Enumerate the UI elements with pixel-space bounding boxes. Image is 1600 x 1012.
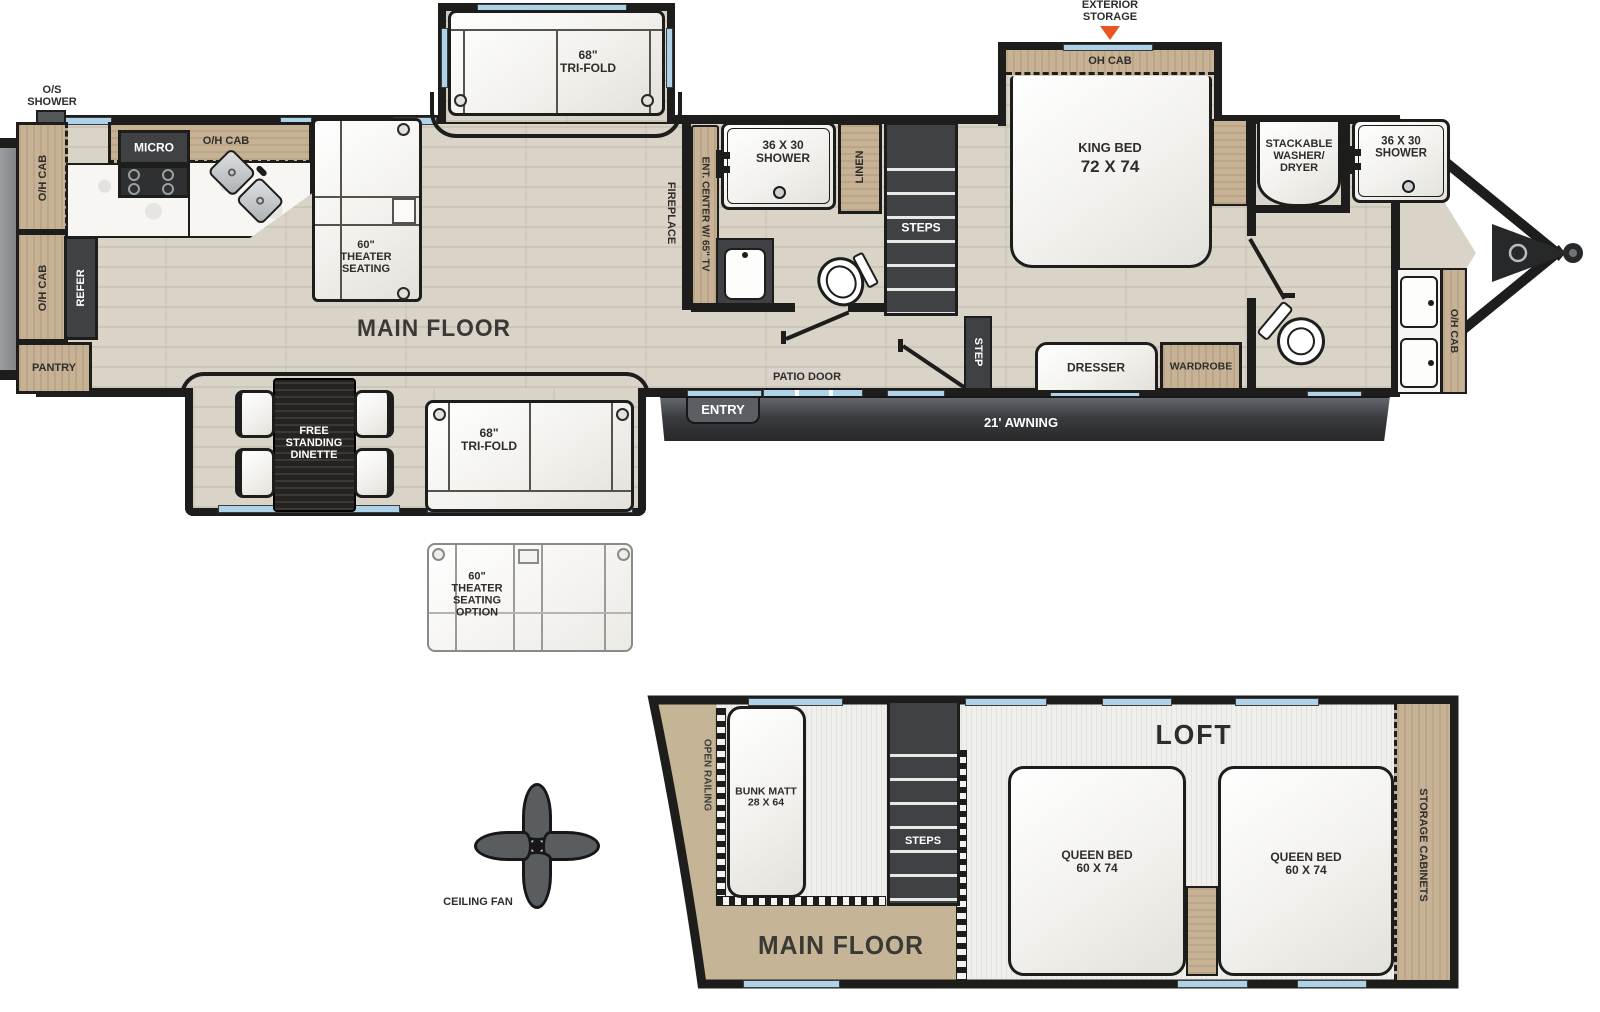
stair-treads bbox=[887, 168, 955, 313]
theater-option-label: 60" THEATER SEATING OPTION bbox=[451, 571, 502, 619]
oh-cab-left-top-label: O/H CAB bbox=[37, 155, 49, 201]
faucet-icon bbox=[1428, 300, 1434, 306]
dinette-label: FREE STANDING DINETTE bbox=[286, 426, 343, 462]
bunk-railing bbox=[716, 708, 726, 904]
step-label: STEP bbox=[972, 338, 984, 367]
washer-dryer-label: STACKABLE WASHER/ DRYER bbox=[1265, 139, 1332, 175]
nightstand bbox=[1186, 886, 1218, 976]
sofa-backrest bbox=[428, 490, 631, 509]
shower-front-label: 36 X 30 SHOWER bbox=[1375, 136, 1427, 161]
microwave-label: MICRO bbox=[134, 142, 174, 155]
bunk-matt-label: BUNK MATT 28 X 64 bbox=[735, 787, 797, 810]
sofa-divider bbox=[529, 403, 531, 490]
window bbox=[1063, 44, 1153, 51]
dinette-chair bbox=[235, 448, 275, 498]
shower-mid-label: 36 X 30 SHOWER bbox=[756, 139, 810, 165]
loft-main-floor-label: MAIN FLOOR bbox=[758, 931, 924, 959]
awning-label: 21' AWNING bbox=[984, 416, 1058, 430]
dinette-chair bbox=[354, 390, 394, 438]
trifold-top-label: 68" TRI-FOLD bbox=[560, 49, 616, 75]
screw-icon bbox=[617, 548, 630, 561]
screw-icon bbox=[433, 408, 446, 421]
dresser-label: DRESSER bbox=[1067, 362, 1125, 375]
window bbox=[1297, 980, 1367, 988]
theater-option-armrest bbox=[604, 545, 606, 650]
theater-seating-label: 60" THEATER SEATING bbox=[340, 240, 391, 276]
shower-knob-icon bbox=[723, 152, 730, 159]
storage-cabinets-label: STORAGE CABINETS bbox=[1417, 788, 1429, 901]
exterior-storage-arrow-icon bbox=[1100, 26, 1120, 40]
burner-icon bbox=[128, 169, 140, 181]
steps-label: STEPS bbox=[901, 222, 940, 235]
sofa-backrest bbox=[451, 13, 662, 31]
king-oh-cab-label: OH CAB bbox=[1088, 56, 1131, 68]
theater-option-cupholder bbox=[518, 549, 539, 564]
burner-icon bbox=[162, 169, 174, 181]
front-oh-cab-label: O/H CAB bbox=[1448, 309, 1460, 353]
screw-icon bbox=[397, 287, 410, 300]
door-handle bbox=[781, 331, 786, 344]
shower-drain-icon bbox=[1402, 180, 1415, 193]
window bbox=[1102, 698, 1172, 706]
window bbox=[1235, 698, 1319, 706]
wall bbox=[848, 303, 884, 312]
loft-steps-label: STEPS bbox=[905, 836, 941, 848]
fan-blade-icon bbox=[474, 831, 532, 861]
shower-head-icon bbox=[1347, 146, 1353, 174]
floorplan-canvas: 68" TRI-FOLD OH CAB KING BED 72 X 74 EXT… bbox=[0, 0, 1600, 1012]
trifold-bottom-label: 68" TRI-FOLD bbox=[461, 427, 517, 453]
dinette-chair bbox=[354, 448, 394, 498]
refer-label: REFER bbox=[75, 269, 87, 306]
faucet-icon bbox=[742, 252, 748, 258]
sofa-armrest bbox=[611, 403, 613, 490]
burner-icon bbox=[128, 183, 140, 195]
kitchen-oh-cab-label: O/H CAB bbox=[203, 136, 249, 148]
queen-bed-1-label: QUEEN BED 60 X 74 bbox=[1061, 849, 1132, 875]
shower-knob-icon bbox=[1354, 163, 1361, 170]
wall bbox=[1247, 122, 1256, 236]
shower-knob-icon bbox=[1354, 149, 1361, 156]
sofa-armrest bbox=[448, 403, 450, 490]
main-floor-label: MAIN FLOOR bbox=[357, 316, 511, 342]
screw-icon bbox=[432, 548, 445, 561]
sofa-divider bbox=[556, 31, 558, 113]
window bbox=[965, 698, 1047, 706]
faucet-icon bbox=[1428, 360, 1434, 366]
patio-door-gap bbox=[795, 390, 799, 396]
patio-door-gap bbox=[829, 390, 833, 396]
door-handle bbox=[898, 339, 903, 352]
fireplace-label: FIREPLACE bbox=[665, 182, 677, 244]
patio-door-label: PATIO DOOR bbox=[773, 372, 841, 384]
theater-console bbox=[392, 198, 416, 224]
wardrobe-label: WARDROBE bbox=[1170, 361, 1232, 372]
queen-bed-2-label: QUEEN BED 60 X 74 bbox=[1270, 851, 1341, 877]
hitch-ball-center bbox=[1569, 249, 1577, 257]
king-bed-size: 72 X 74 bbox=[1081, 158, 1140, 176]
window bbox=[1177, 980, 1248, 988]
window bbox=[441, 28, 448, 88]
screw-icon bbox=[616, 408, 629, 421]
king-bed-title: KING BED bbox=[1078, 141, 1142, 155]
window bbox=[666, 28, 673, 88]
fan-hub-icon bbox=[531, 840, 543, 852]
patio-door bbox=[763, 388, 863, 398]
wall bbox=[682, 122, 691, 310]
shower-knob-icon bbox=[723, 166, 730, 173]
loft-stair-treads bbox=[890, 754, 957, 903]
wall bbox=[1250, 205, 1350, 213]
os-shower-label: O/S SHOWER bbox=[27, 85, 77, 109]
wall bbox=[691, 303, 795, 312]
bedroom-closet bbox=[1212, 119, 1248, 206]
ceiling-fan-label: CEILING FAN bbox=[443, 897, 513, 909]
entry-label: ENTRY bbox=[701, 403, 745, 417]
theater-divider bbox=[315, 224, 419, 226]
open-railing-label: OPEN RAILING bbox=[702, 739, 713, 811]
oh-cab-left-bottom-label: O/H CAB bbox=[37, 265, 49, 311]
screw-icon bbox=[454, 94, 467, 107]
burner-icon bbox=[162, 183, 174, 195]
window bbox=[748, 698, 843, 706]
loft-title: LOFT bbox=[1155, 720, 1232, 750]
screw-icon bbox=[641, 94, 654, 107]
dinette-chair bbox=[235, 390, 275, 438]
exterior-storage-label: EXTERIOR STORAGE bbox=[1082, 0, 1138, 24]
shower-head-icon bbox=[716, 150, 722, 178]
linen-label: LINEN bbox=[854, 151, 866, 184]
window bbox=[743, 980, 840, 988]
ent-center-label: ENT. CENTER W/ 65" TV bbox=[700, 157, 711, 272]
pantry-label: PANTRY bbox=[32, 363, 76, 375]
shower-drain-icon bbox=[773, 186, 786, 199]
screw-icon bbox=[397, 123, 410, 136]
